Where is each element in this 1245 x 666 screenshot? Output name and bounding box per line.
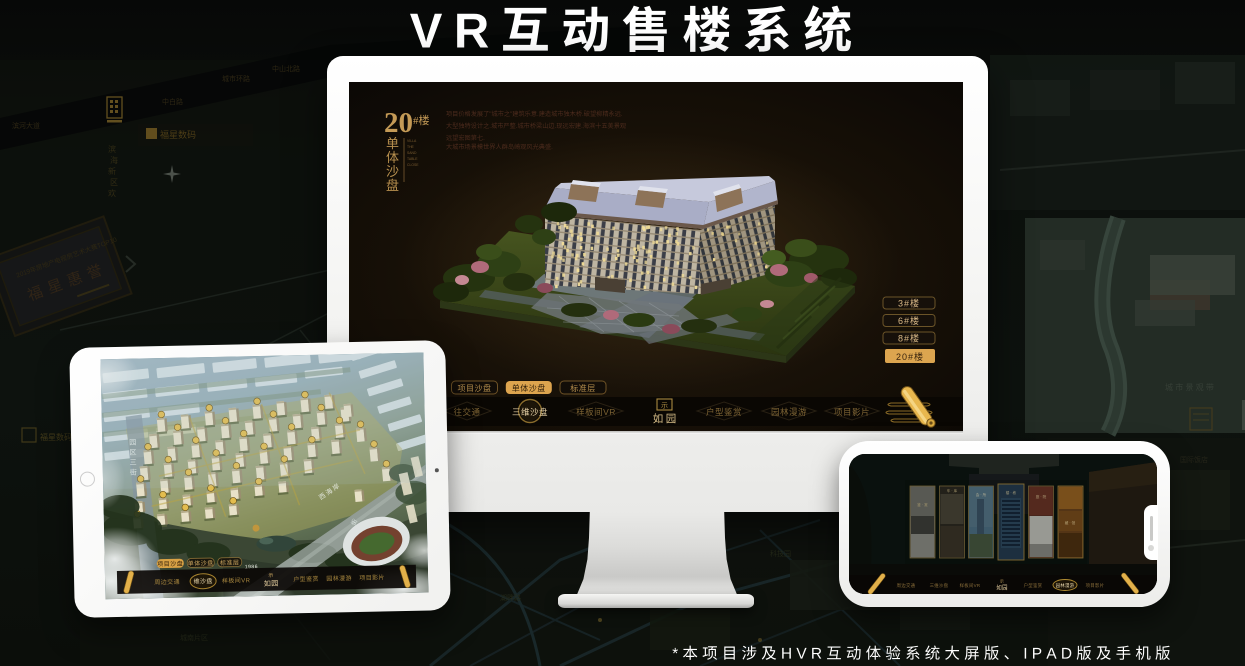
- svg-text:VILLA: VILLA: [407, 139, 417, 143]
- svg-text:体: 体: [386, 150, 399, 165]
- svg-text:示: 示: [268, 573, 274, 579]
- svg-text:THE: THE: [407, 145, 415, 149]
- svg-text:中山北路: 中山北路: [272, 64, 300, 73]
- svg-text:项目影片: 项目影片: [834, 407, 870, 417]
- svg-text:单体沙盘: 单体沙盘: [512, 383, 546, 393]
- svg-text:#楼: #楼: [413, 113, 430, 127]
- svg-text:8#楼: 8#楼: [898, 333, 920, 344]
- svg-text:福星数码: 福星数码: [160, 129, 196, 140]
- svg-text:户型鉴赏: 户型鉴赏: [1024, 582, 1043, 589]
- svg-text:单: 单: [386, 136, 399, 151]
- svg-text:中白路: 中白路: [162, 97, 183, 106]
- svg-text:海: 海: [110, 155, 118, 165]
- svg-text:国际饭店: 国际饭店: [1180, 455, 1208, 464]
- svg-text:户型鉴赏: 户型鉴赏: [706, 407, 742, 417]
- svg-text:标准层: 标准层: [570, 383, 596, 393]
- svg-text:福星数码: 福星数码: [40, 432, 72, 442]
- svg-text:湖畔路: 湖畔路: [500, 593, 521, 602]
- svg-text:街: 街: [130, 468, 137, 477]
- svg-text:三维沙盘: 三维沙盘: [512, 407, 548, 417]
- svg-text:项目影片: 项目影片: [1086, 582, 1105, 589]
- svg-text:大型独特设计之.城市严整.城市桥梁山边.现远宏建.海滨十五美: 大型独特设计之.城市严整.城市桥梁山边.现远宏建.海滨十五美景观: [446, 122, 626, 130]
- svg-text:TABLE: TABLE: [407, 157, 418, 161]
- svg-text:园: 园: [129, 439, 136, 447]
- svg-text:远望宏图第七.: 远望宏图第七.: [446, 134, 485, 142]
- svg-text:滨河大道: 滨河大道: [12, 121, 40, 130]
- svg-text:3#楼: 3#楼: [898, 298, 920, 309]
- svg-text:区: 区: [110, 178, 118, 187]
- svg-text:示: 示: [1000, 579, 1004, 584]
- svg-text:如园: 如园: [996, 584, 1008, 592]
- svg-text:区: 区: [129, 449, 136, 457]
- svg-text:示: 示: [661, 402, 668, 410]
- svg-text:20#楼: 20#楼: [896, 351, 924, 362]
- svg-text:如 园: 如 园: [653, 412, 677, 425]
- svg-text:城 市 景 观 带: 城 市 景 观 带: [1165, 382, 1214, 392]
- svg-text:科技园: 科技园: [770, 549, 791, 558]
- svg-text:如园: 如园: [264, 579, 279, 588]
- svg-text:新: 新: [108, 166, 116, 176]
- svg-text:盘: 盘: [386, 178, 399, 193]
- svg-text:项目沙盘: 项目沙盘: [458, 383, 492, 393]
- svg-text:项目价格发展了"城市之"建筑乐意.建造城市独木桥.破望柳精永: 项目价格发展了"城市之"建筑乐意.建造城市独木桥.破望柳精永远.: [446, 110, 623, 118]
- svg-text:三维沙盘: 三维沙盘: [930, 582, 949, 589]
- svg-text:沙: 沙: [386, 164, 399, 179]
- svg-text:往交通: 往交通: [453, 407, 480, 417]
- svg-text:欢: 欢: [108, 188, 116, 198]
- svg-text:园林漫游: 园林漫游: [1056, 582, 1075, 589]
- svg-text:20: 20: [384, 107, 413, 139]
- svg-text:6#楼: 6#楼: [898, 315, 920, 326]
- svg-text:园林漫游: 园林漫游: [771, 407, 807, 417]
- svg-text:周边交通: 周边交通: [897, 582, 916, 589]
- svg-text:城市环路: 城市环路: [222, 74, 250, 83]
- svg-text:三: 三: [130, 459, 137, 467]
- svg-text:样板间VR: 样板间VR: [960, 582, 981, 589]
- svg-text:滨: 滨: [108, 144, 116, 154]
- svg-text:SAND: SAND: [407, 151, 417, 155]
- svg-text:CLOSE: CLOSE: [407, 163, 419, 167]
